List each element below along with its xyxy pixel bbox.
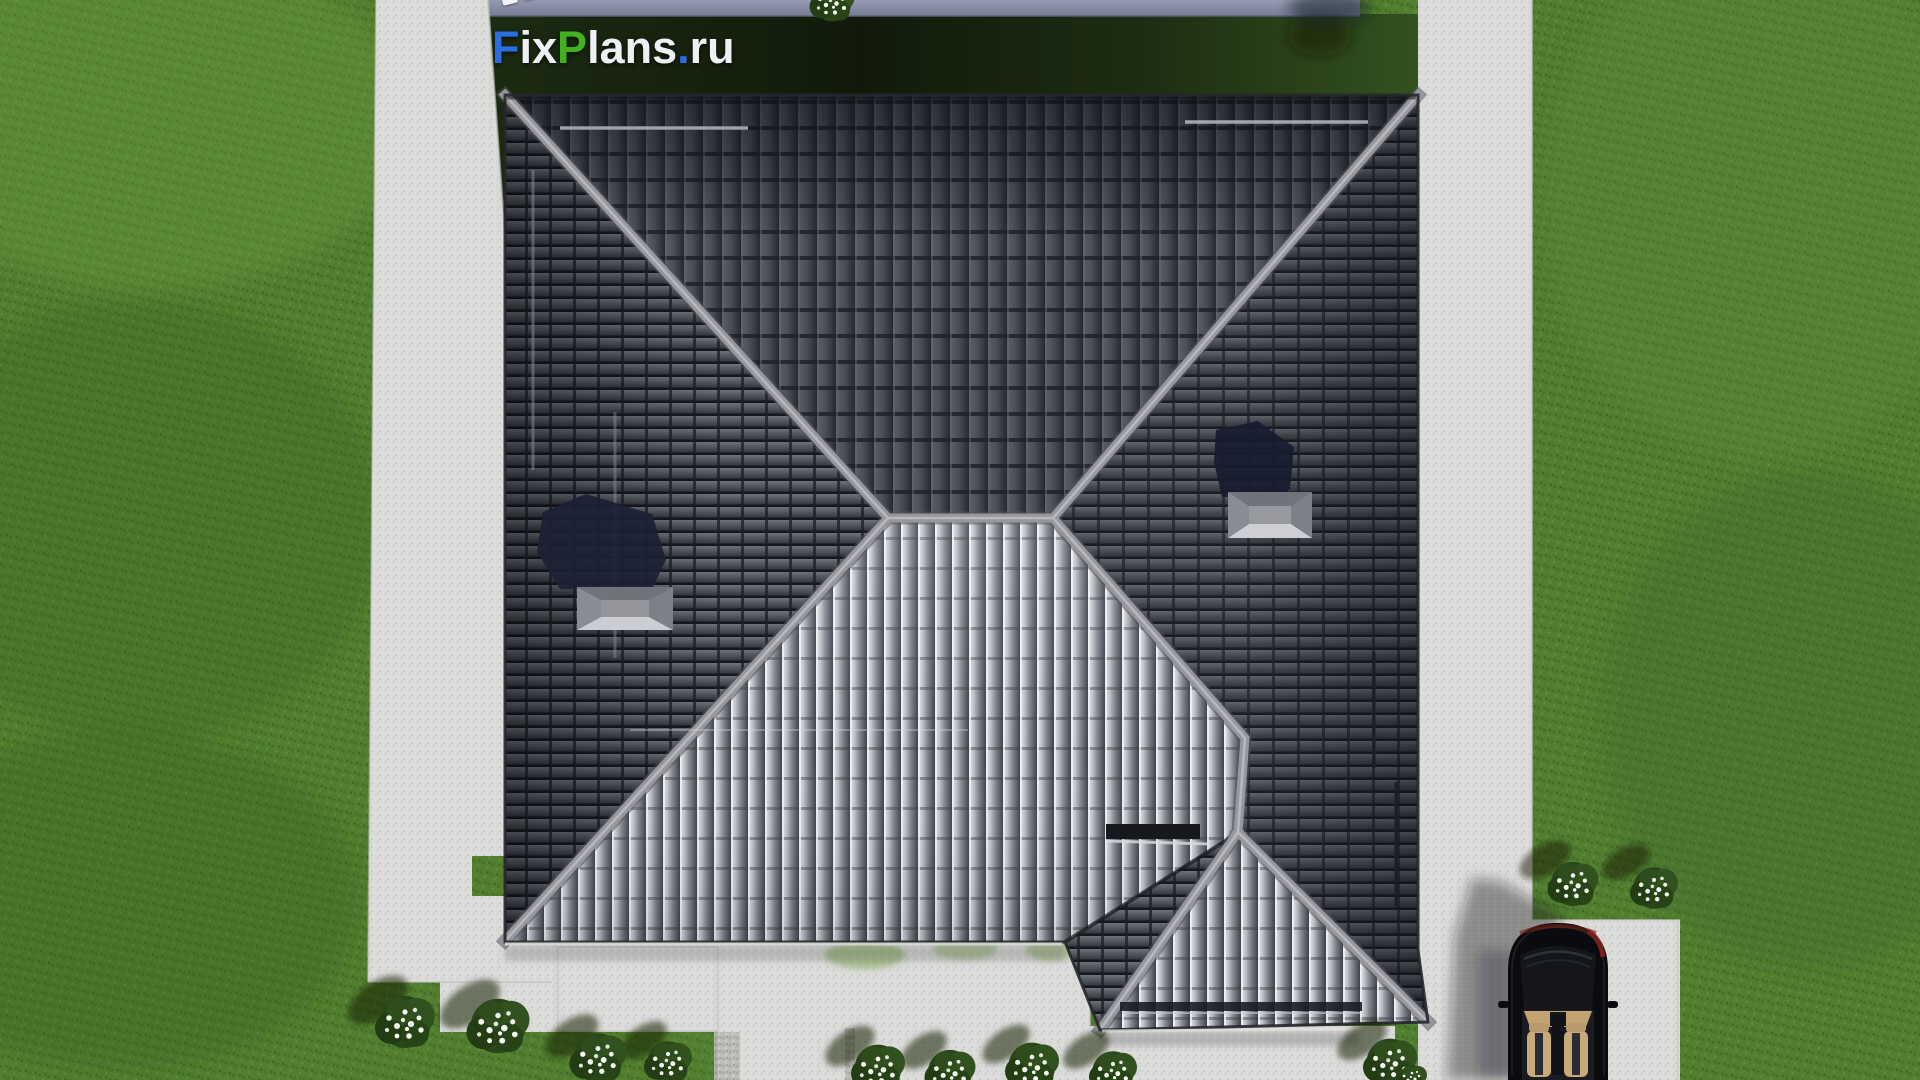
watermark-letter: P bbox=[557, 22, 587, 73]
eave-fascia-garage bbox=[1102, 1029, 1360, 1031]
car-console bbox=[1552, 1015, 1564, 1075]
watermark-letter: . bbox=[677, 22, 690, 73]
car-mirror-left bbox=[1498, 1001, 1509, 1008]
watermark-letter: a bbox=[600, 22, 625, 73]
watermark-letter: u bbox=[707, 22, 735, 73]
render-canvas: FixPlans.ru bbox=[0, 0, 1920, 1080]
watermark-letter: r bbox=[690, 22, 708, 73]
watermark-letter: x bbox=[532, 22, 557, 73]
car-mirror-right bbox=[1607, 1001, 1618, 1008]
watermark-letter: i bbox=[520, 22, 533, 73]
car bbox=[1498, 923, 1618, 1080]
garage-eave-cast-shadow bbox=[1102, 1032, 1360, 1046]
watermark-letter: n bbox=[625, 22, 653, 73]
watermark: FixPlans.ru bbox=[492, 22, 735, 74]
watermark-letter: s bbox=[652, 22, 677, 73]
eave-cast-shadow bbox=[505, 945, 1065, 961]
main-roof bbox=[505, 95, 1428, 1031]
grass-patch bbox=[472, 856, 508, 896]
skylight-left bbox=[577, 587, 673, 630]
boundary-wall-strip bbox=[488, 0, 1360, 16]
watermark-letter: l bbox=[587, 22, 600, 73]
paver-edge-left bbox=[714, 1032, 740, 1080]
skylight-right bbox=[1228, 492, 1312, 538]
scene-svg bbox=[0, 0, 1920, 1080]
watermark-letter: F bbox=[492, 22, 520, 73]
